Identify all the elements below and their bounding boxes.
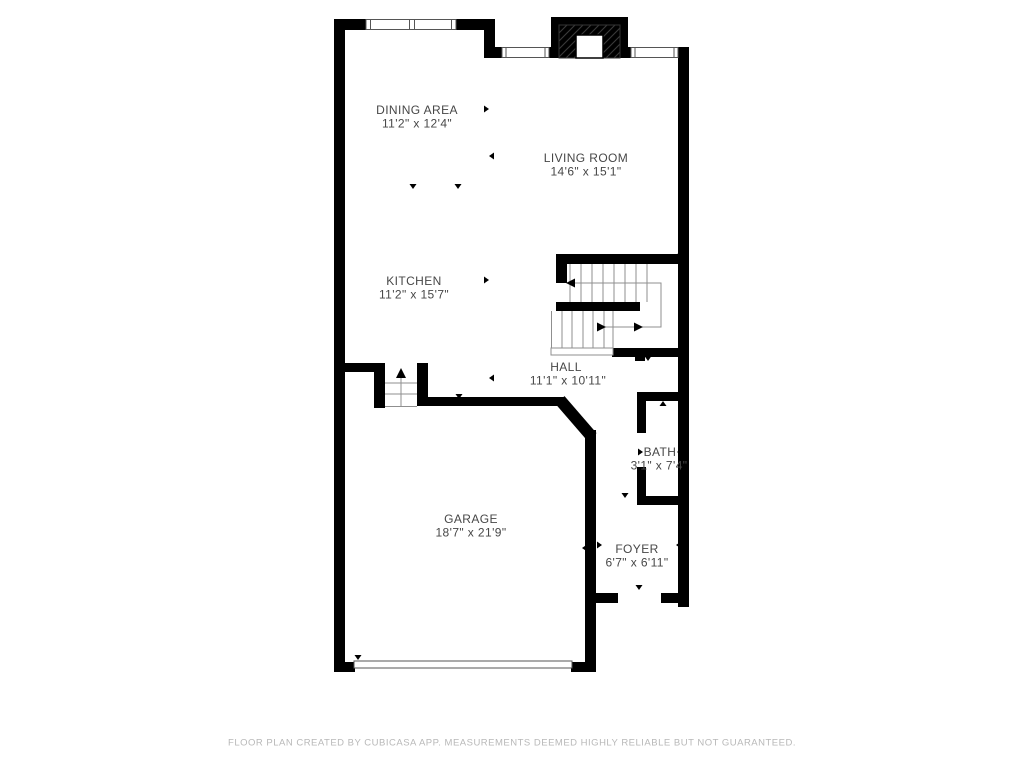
door-marker (484, 277, 489, 284)
stair-arrow-mid1 (597, 323, 606, 332)
room-dims-kitchen: 11'2" x 15'7" (379, 288, 449, 302)
room-name-dining: DINING AREA (376, 103, 458, 117)
door-marker (597, 542, 602, 549)
room-name-bath: BATH (644, 445, 677, 459)
entry-stair-up-arrow (396, 368, 406, 378)
wall-stair-bottom-stub (635, 348, 645, 361)
stair-arrow-mid2 (634, 323, 643, 332)
room-dims-foyer: 6'7" x 6'11" (605, 556, 668, 570)
wall-left (334, 19, 345, 672)
wall-entry-stair-left (374, 363, 385, 408)
floor-plan-page: DINING AREA 11'2" x 12'4" LIVING ROOM 14… (0, 0, 1024, 768)
wall-entry-stair-right (417, 363, 428, 401)
door-marker (455, 184, 462, 189)
room-dims-bath: 3'1" x 7'4" (631, 459, 688, 473)
firebox (576, 35, 603, 58)
room-name-hall: HALL (550, 360, 582, 374)
door-marker (645, 356, 652, 361)
door-marker (660, 401, 667, 406)
wall-stair-middle (556, 302, 640, 311)
room-dims-dining: 11'2" x 12'4" (382, 117, 452, 131)
wall-garage-top (417, 397, 564, 406)
room-dims-living: 14'6" x 15'1" (550, 165, 621, 179)
door-marker (484, 106, 489, 113)
garage-door (354, 661, 572, 668)
door-marker (636, 585, 643, 590)
floor-plan-canvas: DINING AREA 11'2" x 12'4" LIVING ROOM 14… (0, 0, 1024, 768)
wall-garage-diagonal (560, 400, 592, 437)
room-name-living: LIVING ROOM (544, 151, 628, 165)
fireplace (551, 17, 628, 58)
door-marker (355, 655, 362, 660)
garage-entry-stairs (385, 368, 417, 407)
door-marker (410, 184, 417, 189)
wall-garage-bottom-right-corner (571, 662, 596, 672)
door-marker (582, 545, 587, 552)
wall-bath-left-upper (637, 392, 646, 433)
room-name-garage: GARAGE (444, 512, 498, 526)
wall-bath-bottom (637, 496, 689, 505)
wall-stair-top (556, 254, 689, 264)
window-living-left (502, 48, 549, 58)
wall-stair-top-stub (556, 254, 567, 283)
room-dims-hall: 11'1" x 10'11" (530, 374, 606, 388)
wall-stair-bottom (612, 348, 689, 357)
footer-disclaimer: FLOOR PLAN CREATED BY CUBICASA APP. MEAS… (228, 738, 796, 749)
stair-landing-strip (551, 348, 613, 355)
room-name-kitchen: KITCHEN (386, 274, 441, 288)
door-marker (489, 375, 494, 382)
wall-foyer-bottom-right (661, 593, 689, 603)
wall-foyer-bottom-left (585, 593, 618, 603)
room-dims-garage: 18'7" x 21'9" (435, 526, 506, 540)
wall-right (678, 47, 689, 607)
door-marker (638, 449, 643, 456)
windows (366, 20, 678, 58)
wall-garage-bottom-left-corner (334, 662, 355, 672)
room-name-foyer: FOYER (615, 542, 658, 556)
window-dining (366, 20, 456, 30)
window-living-right (631, 48, 678, 58)
door-marker (489, 153, 494, 160)
door-marker (622, 493, 629, 498)
